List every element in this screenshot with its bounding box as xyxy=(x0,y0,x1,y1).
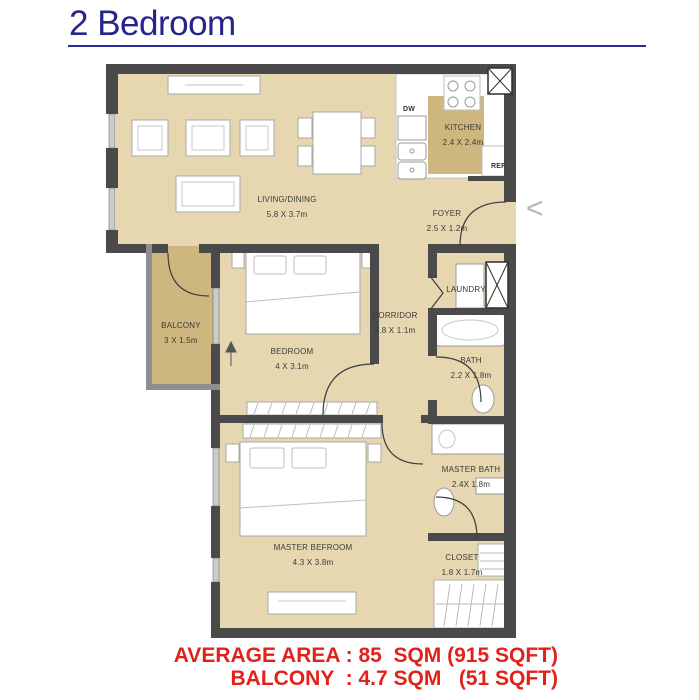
label-refrigerator: REF xyxy=(491,163,506,170)
room-label-foyer: FOYER 2.5 X 1.2m xyxy=(427,206,468,236)
room-label-closet: CLOSET 1.8 X 1.7m xyxy=(442,550,483,580)
average-area-text: AVERAGE AREA : 85 SQM (915 SQFT) xyxy=(174,644,558,667)
room-label-corridor: CORRIDOR 3.8 X 1.1m xyxy=(372,308,417,338)
room-label-living-dining: LIVING/DINING 5.8 X 3.7m xyxy=(257,192,316,222)
balcony-area-text: BALCONY : 4.7 SQM (51 SQFT) xyxy=(174,667,558,690)
room-label-master-bedroom: MASTER BEFROOM 4.3 X 3.8m xyxy=(274,540,353,570)
label-dishwasher: DW xyxy=(403,106,415,113)
room-label-bath: BATH 2.2 X 1.8m xyxy=(451,353,492,383)
area-summary: AVERAGE AREA : 85 SQM (915 SQFT) BALCONY… xyxy=(174,644,558,690)
room-label-balcony: BALCONY 3 X 1.5m xyxy=(161,318,201,348)
room-label-laundry: LAUNDRY xyxy=(446,282,486,297)
page: 2 Bedroom xyxy=(0,0,699,700)
carousel-prev-icon[interactable]: < xyxy=(526,194,544,224)
room-label-bedroom: BEDROOM 4 X 3.1m xyxy=(271,344,314,374)
floor-plan: LIVING/DINING 5.8 X 3.7m KITCHEN 2.4 X 2… xyxy=(0,0,699,700)
room-label-master-bath: MASTER BATH 2.4X 1.8m xyxy=(442,462,501,492)
floor-plan-drawing xyxy=(0,0,699,700)
room-label-kitchen: KITCHEN 2.4 X 2.4m xyxy=(443,120,484,150)
